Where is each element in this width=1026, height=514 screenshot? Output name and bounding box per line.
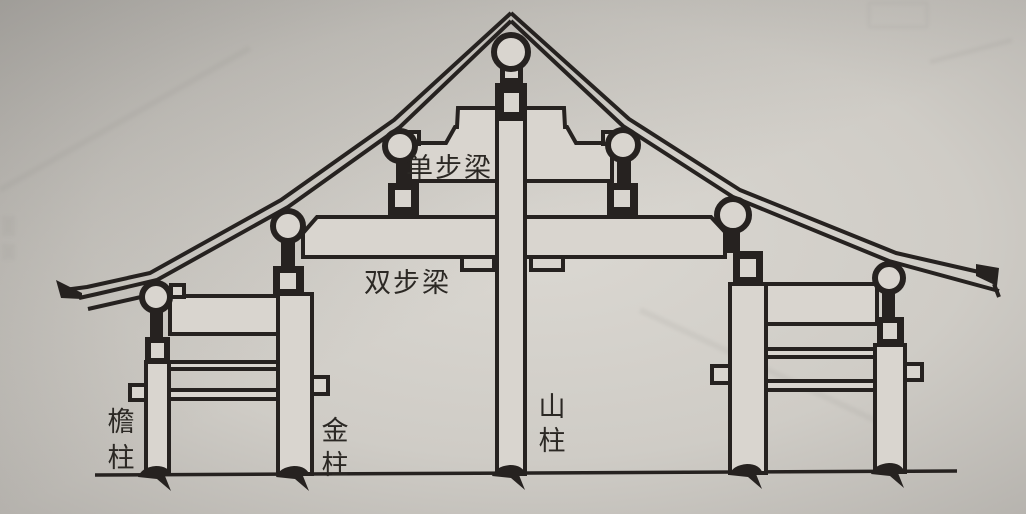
- label-double-step-beam: 双步梁: [364, 268, 451, 299]
- golden-column-right: [730, 284, 766, 473]
- upper-purlin-right: [608, 130, 638, 160]
- eave-column-right: [875, 345, 905, 472]
- label-single-step-beam: 单步梁: [406, 153, 493, 184]
- book-page-photo: 单步梁 双步梁 檐柱 金柱 山柱: [0, 0, 1026, 514]
- golden-purlin-left: [273, 211, 303, 241]
- beam-tenon-block: [531, 257, 563, 270]
- ridge-column: [497, 85, 525, 474]
- golden-purlin-right: [717, 199, 749, 231]
- eave-purlin-right: [875, 264, 903, 292]
- ridge-purlin: [494, 35, 528, 69]
- eave-column-left: [146, 362, 169, 474]
- beam-tenon-block: [462, 257, 494, 270]
- eave-purlin-left: [142, 283, 170, 311]
- timber-frame-section-diagram: 单步梁 双步梁 檐柱 金柱 山柱: [0, 0, 1026, 514]
- golden-column-left: [278, 294, 312, 474]
